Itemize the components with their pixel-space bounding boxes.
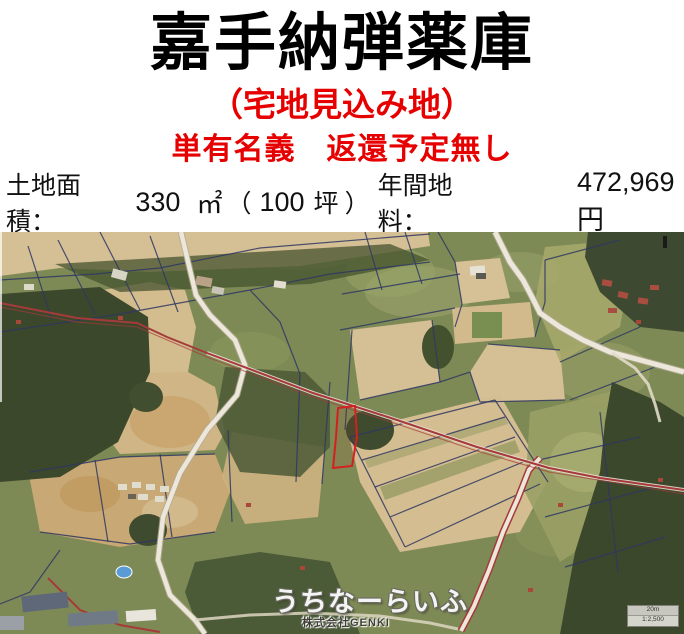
area-label: 土地面積： [6, 166, 113, 238]
map-scale-bar: 20m 1:2,500 [627, 605, 679, 627]
rent-value: 472,969円 [577, 167, 684, 237]
area-value: 330 [135, 187, 180, 218]
land-info-row: 土地面積： 330 ㎡ （ 100 坪 ） 年間地料： 472,969円 [0, 180, 684, 224]
aerial-map: うちなーらいふ 株式会社GENKI 20m 1:2,500 [0, 232, 684, 634]
flyer-page: 嘉手納弾薬庫 （宅地見込み地） 単有名義 返還予定無し 土地面積： 330 ㎡ … [0, 0, 684, 634]
scale-distance: 20m [628, 606, 678, 616]
pool [116, 566, 132, 578]
scale-ratio: 1:2,500 [628, 616, 678, 625]
tsubo-value: 100 [259, 187, 304, 218]
paren-open: （ [226, 184, 251, 220]
tsubo-unit: 坪 [314, 184, 339, 220]
ownership-note: 単有名義 返還予定無し [0, 130, 684, 170]
area-unit: ㎡ [196, 184, 222, 221]
subject-parcel-outline [333, 406, 357, 468]
rent-label: 年間地料： [378, 166, 485, 238]
aerial-photo [0, 232, 684, 634]
page-title: 嘉手納弾薬庫 [0, 0, 684, 88]
paren-close: ） [345, 184, 370, 220]
subtitle: （宅地見込み地） [0, 84, 684, 124]
watermark-company: 株式会社GENKI [302, 614, 390, 630]
map-marker [663, 236, 667, 248]
